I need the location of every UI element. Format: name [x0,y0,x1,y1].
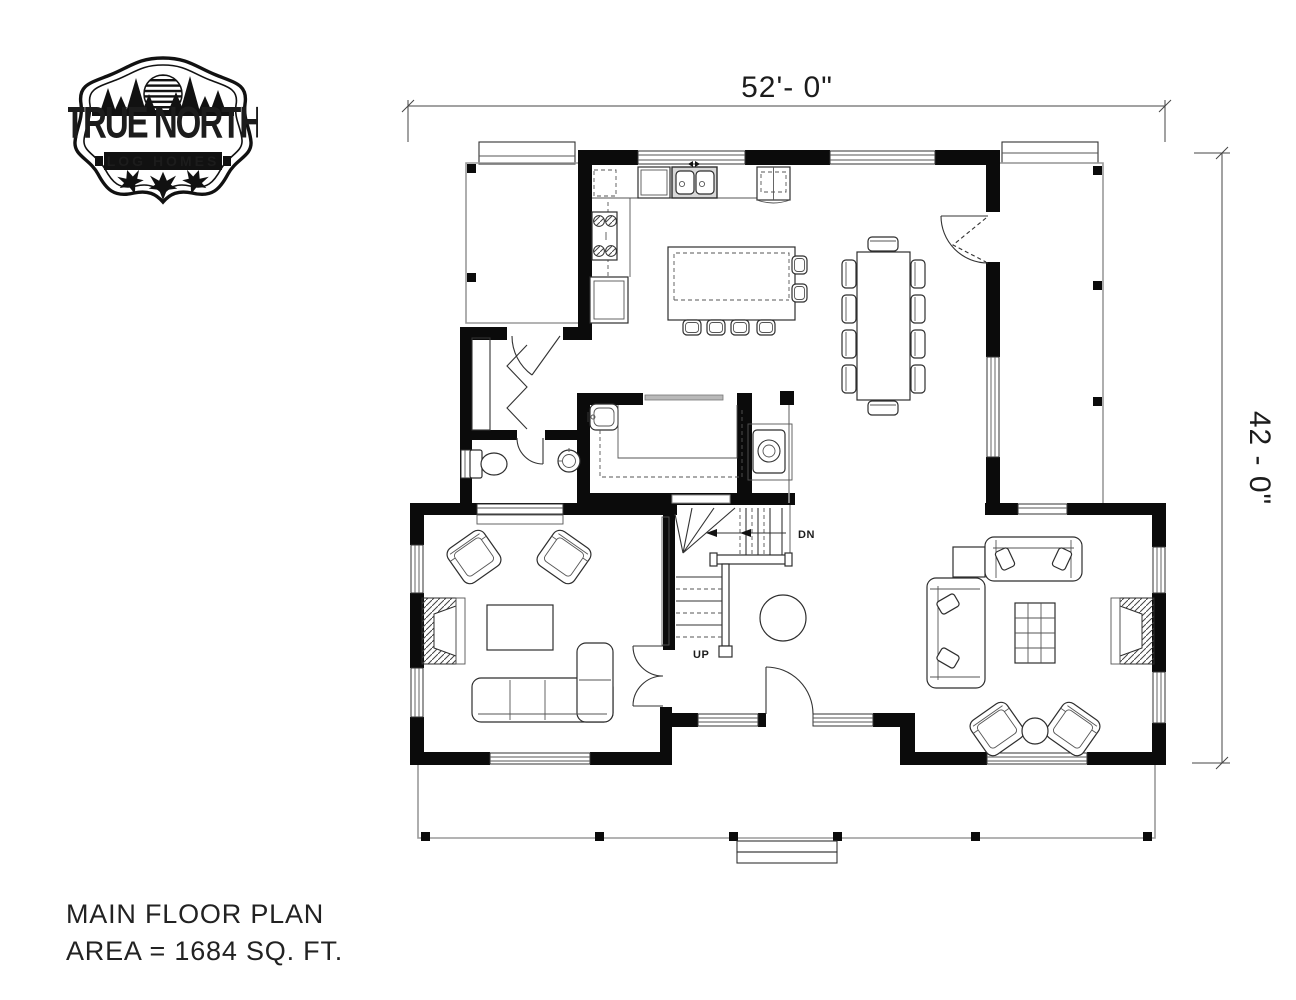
toilet-icon [470,450,507,478]
bar-stool-icon [731,320,749,335]
porch-post-icon [1093,397,1102,406]
pocket-door [645,395,723,400]
logo-banner: LOG HOMES [95,152,231,170]
porch-door-swing [941,216,988,263]
side-table-icon [953,547,985,577]
logo-primary-text: TRUE NORTH [68,99,258,148]
window-seat-icon [477,515,563,524]
porch-post-icon [1093,166,1102,175]
porch-post-icon [833,832,842,841]
plan-title: MAIN FLOOR PLAN [66,896,343,933]
porch-post-icon [595,832,604,841]
kitchen-island-icon [668,247,807,335]
french-door-swing [633,646,663,706]
screen-door-swing [953,218,986,262]
round-table-icon [760,595,806,641]
laundry-tub-icon [588,404,618,430]
pedestal-sink-icon [558,448,580,472]
bar-stool-icon [707,320,725,335]
bar-stool-icon [683,320,701,335]
side-porch-left [466,142,578,323]
kitchen-sink-icon [672,161,717,198]
great-room [927,537,1154,759]
logo: TRUE NORTH LOG HOMES [68,52,258,212]
porch-post-icon [729,832,738,841]
range-cooktop-icon [592,212,617,260]
powder-door-swing [517,438,543,464]
window-icon [987,357,999,457]
overall-depth-dimension: 42 - 0" [1243,411,1276,505]
window-icon [1153,547,1165,593]
window-icon [411,545,423,593]
armchair-icon [1043,699,1103,759]
window-icon [411,668,423,717]
armchair-icon [534,527,594,587]
up-flight [676,577,722,637]
base-cabinet-icon [590,277,628,323]
plan-area: AREA = 1684 SQ. FT. [66,933,343,970]
dishwasher-icon [594,170,616,196]
kitchen [590,161,807,335]
floor-plan-sheet: 52'- 0" 42 - 0" [0,0,1296,1000]
closet-icon [472,338,490,430]
sidelite-window-icon [698,714,758,726]
window-icon [1018,504,1067,514]
dining-area [842,237,925,415]
living-room [422,515,613,722]
sectional-sofa-icon [472,643,613,722]
porch-post-icon [421,832,430,841]
stair-up-label: UP [693,649,709,661]
window-icon [490,753,590,764]
front-entry-door-swing [766,667,813,714]
fireplace-icon [422,598,465,664]
bar-stool-icon [792,284,807,302]
side-porch-right [1000,142,1103,505]
dining-table-icon [857,252,910,400]
dimension-top: 52'- 0" [402,71,1171,142]
armchair-icon [967,699,1027,759]
dimension-right: 42 - 0" [1192,147,1276,769]
side-entry-door-swing [512,336,560,375]
title-block: MAIN FLOOR PLAN AREA = 1684 SQ. FT. [66,896,343,970]
refrigerator-icon [757,167,790,203]
porch-steps-icon [737,841,837,863]
porch-post-icon [467,164,476,173]
armchair-icon [444,527,504,587]
sofa-icon [985,537,1082,581]
bar-stool-icon [757,320,775,335]
porch-post-icon [467,273,476,282]
sofa-icon [927,578,985,688]
wood-stove-icon [748,424,792,480]
arrow-icon [706,529,717,537]
front-veranda [418,765,1155,863]
sidelite-window-icon [813,714,873,726]
round-table-icon [1022,718,1048,744]
stair-down-label: DN [798,529,815,541]
porch-post-icon [971,832,980,841]
porch-post-icon [1143,832,1152,841]
porch-post-icon [1093,281,1102,290]
window-icon [477,504,563,514]
pantry-counter [600,405,742,477]
logo-secondary-text: LOG HOMES [107,153,220,169]
window-icon [830,151,935,164]
true-north-log-homes-badge: TRUE NORTH LOG HOMES [68,58,258,202]
overall-width-dimension: 52'- 0" [741,71,833,104]
coffee-table-icon [487,605,553,650]
window-icon [1153,672,1165,723]
ottoman-icon [1015,603,1055,663]
bar-stool-icon [792,256,807,274]
corner-cabinet-icon [638,167,670,198]
fireplace-icon [1111,598,1154,664]
